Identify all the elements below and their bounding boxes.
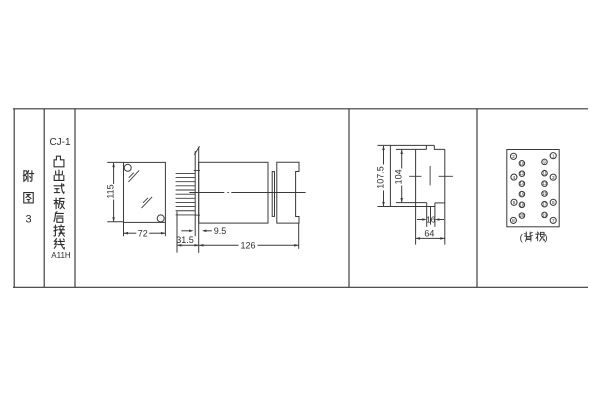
svg-text:17: 17 [542,202,547,207]
svg-text:7: 7 [552,218,555,224]
svg-text:): ) [544,232,547,243]
svg-text:20: 20 [520,213,525,218]
svg-text:CJ-1: CJ-1 [49,137,71,148]
svg-text:5: 5 [552,200,555,206]
svg-text:4: 4 [513,175,516,181]
svg-text:126: 126 [240,241,255,251]
svg-text:8: 8 [512,218,515,224]
svg-text:12: 12 [520,171,525,176]
svg-text:3: 3 [552,175,555,181]
svg-text:19: 19 [542,212,547,217]
svg-text:115: 115 [105,184,115,198]
svg-text:16: 16 [520,192,525,197]
svg-text:1: 1 [552,154,555,160]
svg-text:13: 13 [542,181,547,186]
svg-text:3: 3 [25,214,31,226]
svg-text:A11H: A11H [51,251,71,260]
svg-text:72: 72 [138,228,148,238]
svg-text:2: 2 [512,154,515,160]
svg-text:18: 18 [520,202,525,207]
svg-text:107.5: 107.5 [375,166,385,189]
svg-text:10: 10 [520,161,525,166]
svg-text:14: 14 [520,181,525,186]
svg-text:64: 64 [424,229,434,239]
svg-text:6: 6 [513,200,516,206]
svg-text:16: 16 [426,216,436,225]
svg-text:11: 11 [542,171,547,176]
svg-text:9.5: 9.5 [214,226,227,236]
svg-text:15: 15 [542,191,547,196]
svg-text:31.5: 31.5 [176,235,194,245]
svg-text:104: 104 [394,169,404,184]
